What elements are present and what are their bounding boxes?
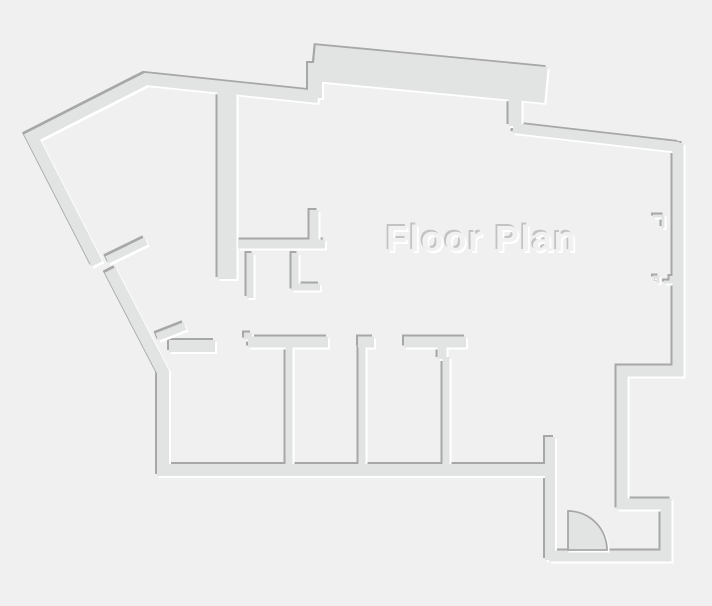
wall-top-protrusion-band <box>314 63 546 85</box>
title-face-text: Floor Plan <box>386 218 577 259</box>
floor-plan-title: Floor Plan Floor Plan Floor Plan <box>384 216 579 261</box>
floor-plan-svg: Floor Plan Floor Plan Floor Plan <box>0 0 712 606</box>
floor-plan-canvas: Floor Plan Floor Plan Floor Plan <box>0 0 712 606</box>
